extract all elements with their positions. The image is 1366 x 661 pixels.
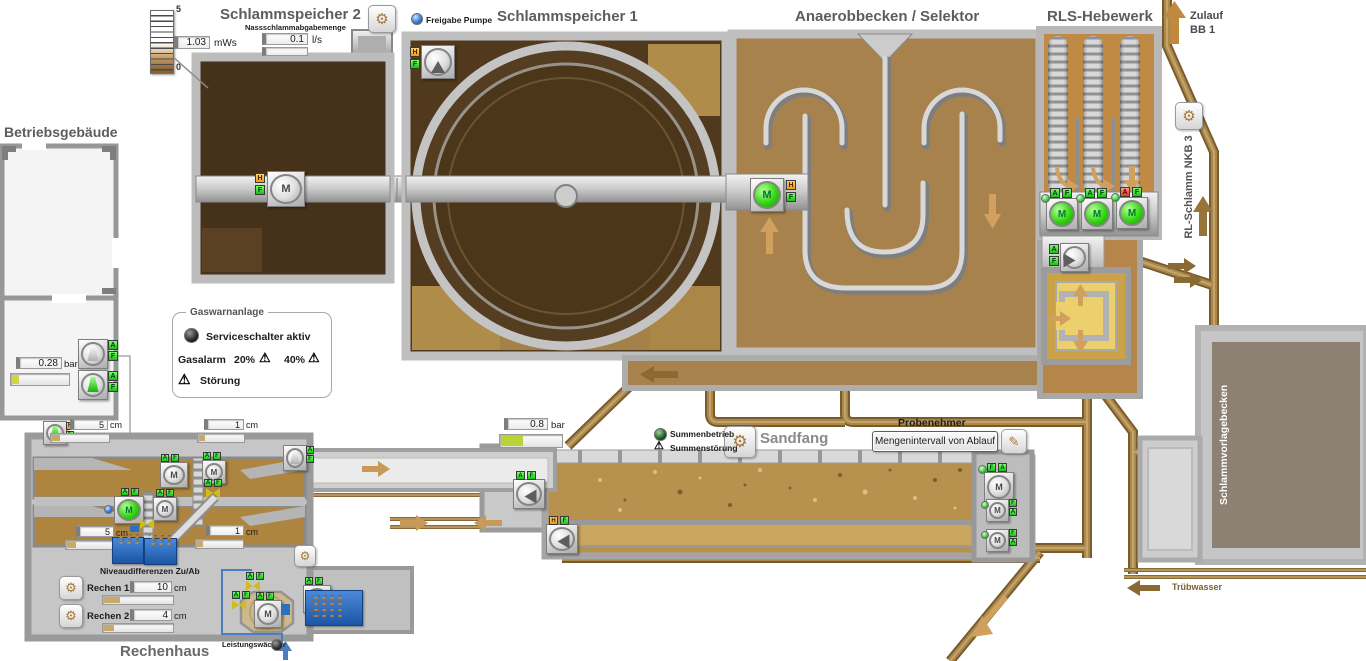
- warning-icon: ⚠: [654, 441, 664, 452]
- probenehmer-button-label: Mengenintervall von Ablauf: [875, 436, 995, 447]
- indicator-f: F: [171, 454, 179, 462]
- druck-bar-bg: [10, 373, 70, 386]
- probenehmer-label: Probenehmer: [898, 417, 966, 429]
- motor-icon: M: [753, 181, 781, 209]
- motor-rechen-2b[interactable]: M: [153, 497, 177, 521]
- indicator-a: A: [1049, 244, 1059, 254]
- serviceschalter-label: Serviceschalter aktiv: [206, 331, 311, 343]
- indicator-a: A: [1085, 188, 1095, 198]
- title-rls-hebewerk: RLS-Hebewerk: [1047, 8, 1153, 25]
- gauge-max-label: 5: [176, 4, 181, 14]
- level-gauge-ss2: [150, 10, 174, 74]
- indicator-f: F: [306, 455, 314, 463]
- motor-icon: M: [1049, 201, 1075, 227]
- indicator-f: F: [214, 479, 222, 487]
- gear-icon: ⚙: [1182, 107, 1195, 125]
- gear-icon: ⚙: [375, 10, 388, 28]
- druck-value-sf[interactable]: 0.8: [504, 418, 548, 430]
- probenehmer-button[interactable]: Mengenintervall von Ablauf: [872, 431, 998, 452]
- pump-sandfang-2[interactable]: [546, 524, 578, 554]
- indicator-f: F: [527, 471, 536, 480]
- motor-icon: M: [257, 603, 279, 625]
- niveaudifferenzen-label: Niveaudifferenzen Zu/Ab: [100, 566, 200, 576]
- settings-button-rh[interactable]: ⚙: [294, 545, 316, 567]
- indicator-a: A: [1009, 538, 1017, 546]
- title-sandfang: Sandfang: [760, 430, 828, 447]
- indicator-f: F: [1097, 188, 1107, 198]
- druck-unit-bg: bar: [64, 359, 78, 370]
- indicator-f: F: [315, 577, 323, 585]
- valve-bg-2[interactable]: [78, 370, 108, 400]
- rechen2-bar: [102, 623, 174, 633]
- gasalarm-20: 20%: [234, 354, 255, 366]
- motor-icon: M: [987, 475, 1011, 499]
- indicator-h: H: [786, 180, 796, 190]
- indicator-f: F: [1062, 188, 1072, 198]
- indicator-a: A: [121, 488, 129, 496]
- gauge-min-label: 0: [176, 62, 181, 72]
- indicator-a: A: [305, 577, 313, 585]
- indicator-a: A: [204, 479, 212, 487]
- gear-icon: ⚙: [65, 608, 77, 624]
- edit-button[interactable]: ✎: [1001, 429, 1027, 454]
- niveau-zu-rechts[interactable]: 1: [204, 419, 244, 430]
- valve-bowtie-icon[interactable]: [140, 519, 154, 529]
- gear-icon: ⚙: [300, 549, 311, 563]
- blue-marker: [281, 604, 290, 615]
- indicator-a: A: [108, 371, 118, 381]
- motor-ss2-bridge[interactable]: M: [267, 171, 305, 207]
- indicator-a: A: [108, 340, 118, 350]
- schlammvorlagebecken-tank: [1140, 328, 1366, 562]
- indicator-a: A: [161, 454, 169, 462]
- druck-unit-sf: bar: [551, 420, 565, 431]
- indicator-a: A: [516, 471, 525, 480]
- title-betriebsgebaeude: Betriebsgebäude: [4, 124, 118, 140]
- indicator-a: A: [256, 592, 264, 600]
- niveau-ab-rechts[interactable]: 1: [206, 525, 244, 536]
- niveau-bar: [197, 433, 245, 443]
- run-led: [1041, 194, 1050, 203]
- indicator-f: F: [410, 59, 420, 69]
- title-rechenhaus: Rechenhaus: [120, 643, 209, 660]
- druck-bar-sf: [499, 434, 563, 448]
- run-led: [1076, 194, 1085, 203]
- motor-rls-2[interactable]: M: [1081, 198, 1113, 230]
- motor-sandfang-1[interactable]: M: [984, 472, 1014, 502]
- indicator-f: F: [108, 382, 118, 392]
- motor-icon: M: [1119, 200, 1145, 226]
- indicator-f: F: [266, 592, 274, 600]
- indicator-h: H: [410, 47, 420, 57]
- motor-icon: M: [156, 500, 174, 518]
- indicator-a: A: [1050, 188, 1060, 198]
- motor-sandfang-2[interactable]: M: [986, 499, 1009, 522]
- indicator-f: F: [786, 192, 796, 202]
- indicator-a: A: [203, 452, 211, 460]
- level-value-ss2[interactable]: 1.03: [174, 36, 210, 49]
- zulauf-bb1-label: BB 1: [1190, 24, 1215, 36]
- motor-icon: M: [117, 499, 141, 521]
- indicator-f: F: [166, 489, 174, 497]
- indicator-a: A: [998, 463, 1007, 472]
- summenbetrieb-label: Summenbetrieb: [670, 429, 734, 439]
- indicator-f: F: [1009, 529, 1017, 537]
- unit-cm: cm: [246, 527, 258, 537]
- pump-sandfang-1[interactable]: [513, 479, 545, 509]
- rl-schlamm-label: RL-Schlamm NKB 3: [1183, 129, 1197, 245]
- abgabe-value[interactable]: 0.1: [262, 33, 308, 45]
- indicator-a-alarm: A: [1120, 187, 1130, 197]
- gear-icon: ⚙: [65, 580, 77, 596]
- indicator-f: F: [1132, 187, 1142, 197]
- unit-cm: cm: [174, 611, 187, 622]
- unit-cm: cm: [246, 420, 258, 430]
- warning-icon: ⚠: [178, 372, 191, 386]
- zulauf-label: Zulauf: [1190, 10, 1223, 22]
- indicator-a: A: [156, 489, 164, 497]
- motor-rls-3[interactable]: M: [1116, 197, 1148, 229]
- rechen1-bar: [102, 595, 174, 605]
- run-led: [1111, 193, 1120, 202]
- indicator-f: F: [131, 488, 139, 496]
- pump-ss1[interactable]: [421, 45, 455, 79]
- motor-icon: M: [270, 174, 302, 204]
- title-schlammspeicher2: Schlammspeicher 2: [220, 6, 361, 23]
- valve-bg-1[interactable]: [78, 339, 108, 369]
- valve-bowtie-icon[interactable]: [246, 581, 260, 591]
- title-anaerobbecken: Anaerobbecken / Selektor: [795, 8, 979, 25]
- indicator-f: F: [1049, 256, 1059, 266]
- settings-button-rls[interactable]: ⚙: [1175, 102, 1203, 130]
- rechen1-value[interactable]: 10: [130, 581, 172, 593]
- warning-icon: ⚠: [259, 351, 271, 364]
- summenstoerung-label: Summenstörung: [670, 443, 738, 453]
- screenings-container: [112, 537, 144, 564]
- level-unit-ss2: mWs: [214, 38, 237, 49]
- blue-dot: [104, 505, 113, 514]
- indicator-a: A: [306, 446, 314, 454]
- schlammspeicher2-tank: [172, 30, 392, 279]
- blue-marker: [130, 526, 139, 532]
- motor-waschpresse[interactable]: M: [254, 600, 282, 628]
- schlammspeicher1-tank: [406, 36, 728, 356]
- rechen2-label: Rechen 2: [87, 611, 129, 622]
- indicator-h: H: [549, 516, 558, 525]
- gasalarm-label: Gasalarm: [178, 354, 226, 366]
- indicator-f: F: [1009, 499, 1017, 507]
- indicator-h: H: [255, 173, 265, 183]
- rechen1-label: Rechen 1: [87, 583, 129, 594]
- pencil-icon: ✎: [1009, 434, 1020, 450]
- serviceschalter-led: [184, 328, 199, 343]
- gasalarm-40: 40%: [284, 354, 305, 366]
- gaswarnanlage-legend: Gaswarnanlage: [186, 307, 268, 318]
- screenings-bin: [305, 590, 363, 626]
- motor-sandfang-3[interactable]: M: [986, 529, 1009, 552]
- truebwasser-label: Trübwasser: [1172, 582, 1222, 592]
- title-schlammspeicher1: Schlammspeicher 1: [497, 8, 638, 25]
- niveau-bar: [50, 433, 110, 443]
- druck-value-bg[interactable]: 0.28: [16, 357, 62, 369]
- leistungswaechter-led: [271, 639, 283, 651]
- valve-rh-outlet[interactable]: [283, 445, 307, 471]
- warning-icon: ⚠: [308, 351, 320, 364]
- indicator-a: A: [246, 572, 254, 580]
- settings-button-rechen2[interactable]: ⚙: [59, 604, 83, 628]
- freigabe-pumpe-led: [411, 13, 423, 25]
- pump-rls[interactable]: [1060, 243, 1089, 272]
- motor-icon: M: [1084, 201, 1110, 227]
- indicator-a: A: [1009, 508, 1017, 516]
- niveau-zu-links[interactable]: 5: [70, 419, 108, 430]
- indicator-f: F: [108, 351, 118, 361]
- run-led: [981, 531, 989, 539]
- valve-bowtie-icon[interactable]: [206, 488, 220, 498]
- stoerung-label: Störung: [200, 375, 240, 387]
- unit-cm: cm: [110, 420, 122, 430]
- niveau-bar: [195, 539, 244, 549]
- motor-rechen-1a[interactable]: M: [160, 462, 188, 488]
- abgabe-unit: l/s: [312, 35, 322, 46]
- motor-icon: M: [989, 502, 1006, 519]
- screenings-container: [144, 538, 177, 565]
- abgabe-field-2[interactable]: [262, 47, 308, 56]
- indicator-f: F: [242, 591, 250, 599]
- settings-button-ss2[interactable]: ⚙: [368, 5, 396, 33]
- motor-icon: M: [989, 532, 1006, 549]
- run-led: [981, 501, 989, 509]
- indicator-f: F: [987, 463, 996, 472]
- run-led: [978, 465, 987, 474]
- betriebsgebaeude-building: [2, 142, 130, 440]
- indicator-f: F: [256, 572, 264, 580]
- niveau-ab-links[interactable]: 5: [76, 526, 114, 537]
- valve-bowtie-icon[interactable]: [232, 600, 246, 610]
- rechen2-value[interactable]: 4: [130, 609, 172, 621]
- plant-overview: Schlammspeicher 2 ⚙ 5 0 1.03 mWs Nasssch…: [0, 0, 1366, 661]
- indicator-a: A: [232, 591, 240, 599]
- indicator-f: F: [213, 452, 221, 460]
- unit-cm: cm: [174, 583, 187, 594]
- motor-anaerob[interactable]: M: [750, 178, 784, 212]
- freigabe-pumpe-label: Freigabe Pumpe: [426, 15, 492, 25]
- indicator-f: F: [560, 516, 569, 525]
- indicator-f: F: [255, 185, 265, 195]
- settings-button-rechen1[interactable]: ⚙: [59, 576, 83, 600]
- motor-rls-1[interactable]: M: [1046, 198, 1078, 230]
- abgabe-label: Nassschlammabgabemenge: [245, 23, 346, 32]
- schlammvorlagebecken-label: Schlammvorlagebecken: [1218, 385, 1232, 505]
- motor-icon: M: [163, 465, 185, 485]
